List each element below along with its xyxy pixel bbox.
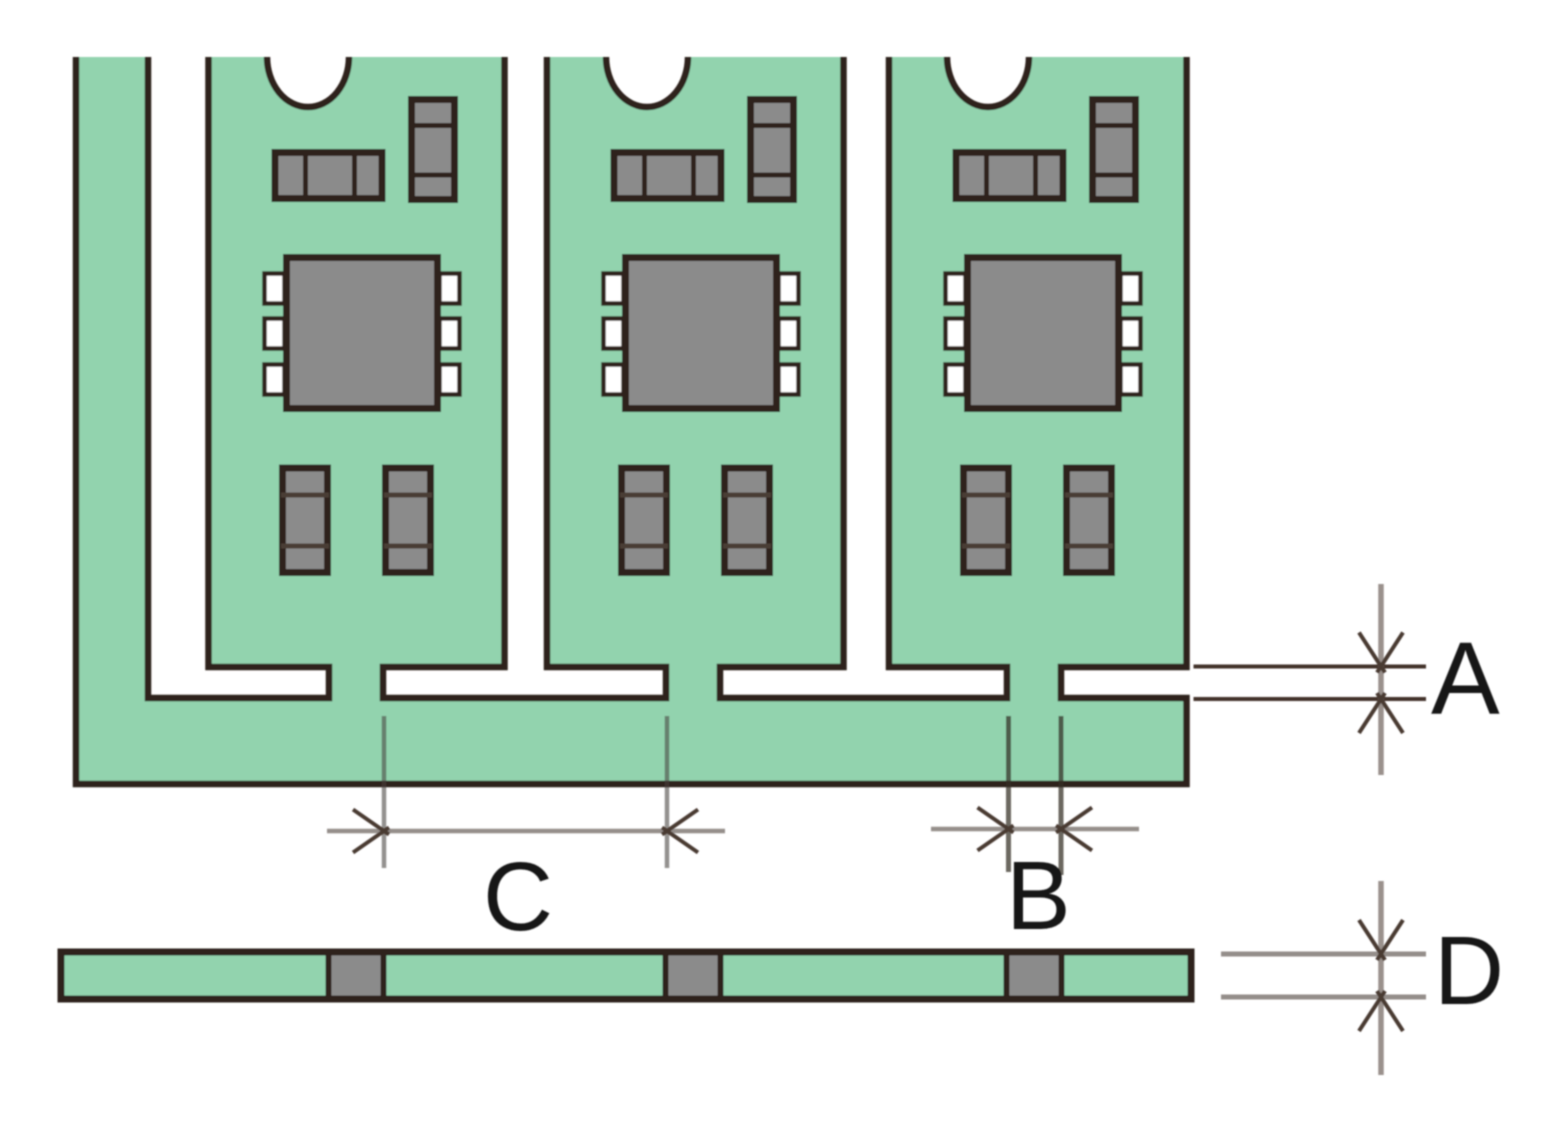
svg-text:C: C — [483, 842, 553, 951]
svg-text:B: B — [1006, 841, 1071, 950]
svg-text:A: A — [1431, 621, 1500, 736]
svg-text:D: D — [1434, 916, 1504, 1025]
